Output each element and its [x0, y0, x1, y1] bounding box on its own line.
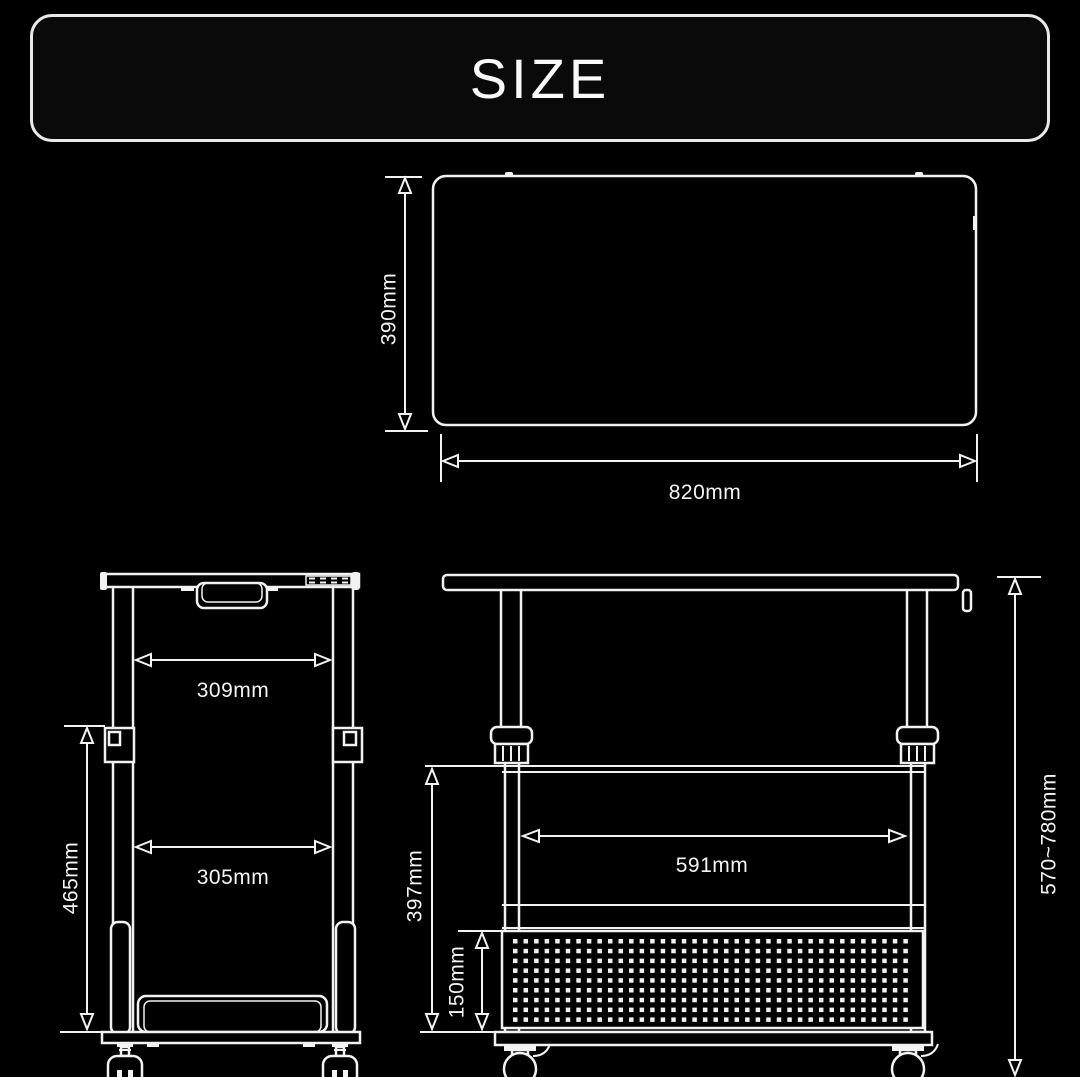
panel-hole [713, 988, 718, 993]
panel-hole [692, 959, 697, 964]
panel-hole [566, 949, 571, 954]
dim-label-309mm: 309mm [197, 679, 270, 702]
panel-hole [629, 978, 634, 983]
panel-hole [808, 968, 813, 973]
panel-hole [903, 988, 908, 993]
panel-hole [534, 968, 539, 973]
panel-hole [745, 949, 750, 954]
panel-hole [650, 998, 655, 1003]
panel-hole [524, 968, 529, 973]
panel-hole [766, 949, 771, 954]
panel-hole [713, 998, 718, 1003]
panel-hole [682, 998, 687, 1003]
panel-hole [872, 988, 877, 993]
panel-hole [661, 978, 666, 983]
panel-hole [629, 959, 634, 964]
panel-hole [840, 968, 845, 973]
panel-hole [682, 1008, 687, 1013]
panel-hole [671, 1017, 676, 1022]
panel-hole [819, 988, 824, 993]
panel-hole [861, 959, 866, 964]
panel-hole [513, 968, 518, 973]
panel-hole [640, 939, 645, 944]
panel-hole [545, 939, 550, 944]
panel-hole [861, 1008, 866, 1013]
side-left-leg [501, 589, 521, 729]
panel-hole [640, 959, 645, 964]
panel-hole [619, 968, 624, 973]
panel-hole [882, 959, 887, 964]
dim-label-570-780mm: 570~780mm [1037, 773, 1060, 895]
panel-hole [851, 1017, 856, 1022]
panel-hole [787, 978, 792, 983]
panel-hole [819, 939, 824, 944]
panel-hole [661, 1008, 666, 1013]
screw-mark-left [505, 172, 513, 177]
panel-hole [671, 998, 676, 1003]
panel-hole [840, 1017, 845, 1022]
panel-hole [798, 998, 803, 1003]
panel-hole [808, 1008, 813, 1013]
panel-hole [587, 1008, 592, 1013]
panel-hole [861, 998, 866, 1003]
panel-hole [555, 998, 560, 1003]
panel-hole [608, 1017, 613, 1022]
panel-hole [650, 988, 655, 993]
panel-hole [671, 939, 676, 944]
panel-hole [661, 988, 666, 993]
panel-hole [640, 968, 645, 973]
panel-hole [840, 949, 845, 954]
panel-hole [703, 959, 708, 964]
panel-hole [745, 998, 750, 1003]
panel-hole [861, 1017, 866, 1022]
panel-hole [640, 998, 645, 1003]
panel-hole [640, 1008, 645, 1013]
panel-hole [513, 939, 518, 944]
panel-hole [840, 998, 845, 1003]
panel-hole [840, 1008, 845, 1013]
panel-hole [819, 1017, 824, 1022]
panel-hole [576, 968, 581, 973]
panel-hole [703, 1008, 708, 1013]
panel-hole [692, 949, 697, 954]
dim-label-397mm: 397mm [403, 850, 426, 923]
panel-hole [619, 978, 624, 983]
dim-390mm: 390mm [377, 177, 428, 431]
panel-hole [555, 988, 560, 993]
panel-hole [735, 1008, 740, 1013]
panel-hole [524, 988, 529, 993]
panel-hole [524, 1008, 529, 1013]
panel-hole [777, 959, 782, 964]
side-view-diagram [420, 575, 971, 1077]
panel-hole [629, 968, 634, 973]
panel-hole [597, 959, 602, 964]
panel-hole [608, 978, 613, 983]
panel-hole [682, 939, 687, 944]
panel-hole [650, 959, 655, 964]
panel-hole [724, 1017, 729, 1022]
panel-hole [661, 949, 666, 954]
panel-hole [903, 939, 908, 944]
panel-hole [545, 998, 550, 1003]
panel-hole [545, 978, 550, 983]
panel-hole [861, 939, 866, 944]
panel-hole [840, 988, 845, 993]
side-right-clamp [897, 727, 938, 763]
panel-hole [608, 939, 613, 944]
panel-hole [819, 978, 824, 983]
panel-hole [893, 978, 898, 983]
panel-hole [671, 959, 676, 964]
panel-hole [724, 949, 729, 954]
panel-hole [819, 959, 824, 964]
dim-820mm: 820mm [441, 434, 977, 504]
panel-hole [756, 968, 761, 973]
panel-hole [629, 988, 634, 993]
panel-hole [576, 988, 581, 993]
panel-hole [545, 959, 550, 964]
panel-hole [671, 978, 676, 983]
panel-hole [861, 988, 866, 993]
panel-hole [692, 1017, 697, 1022]
panel-hole [534, 1008, 539, 1013]
panel-hole [777, 998, 782, 1003]
panel-hole [798, 1017, 803, 1022]
panel-hole [545, 968, 550, 973]
panel-hole [640, 978, 645, 983]
panel-hole [661, 998, 666, 1003]
panel-hole [745, 988, 750, 993]
front-left-caster [108, 1043, 142, 1077]
panel-hole [882, 998, 887, 1003]
panel-hole [830, 949, 835, 954]
panel-hole [587, 939, 592, 944]
dim-465mm: 465mm [59, 726, 105, 1029]
panel-hole [777, 988, 782, 993]
panel-hole [798, 959, 803, 964]
panel-hole [629, 998, 634, 1003]
dim-305mm: 305mm [136, 841, 330, 889]
panel-hole [587, 968, 592, 973]
panel-hole [777, 968, 782, 973]
panel-hole [766, 939, 771, 944]
panel-hole [597, 1008, 602, 1013]
panel-hole [524, 959, 529, 964]
panel-hole [619, 1008, 624, 1013]
panel-hole [576, 978, 581, 983]
panel-hole [545, 1017, 550, 1022]
panel-hole [608, 949, 613, 954]
panel-hole [650, 939, 655, 944]
panel-hole [703, 1017, 708, 1022]
panel-hole [756, 1017, 761, 1022]
panel-hole [524, 939, 529, 944]
panel-hole [808, 998, 813, 1003]
panel-hole [745, 978, 750, 983]
panel-hole [671, 1008, 676, 1013]
panel-hole [798, 968, 803, 973]
panel-hole [513, 1017, 518, 1022]
panel-hole [872, 968, 877, 973]
panel-hole [798, 988, 803, 993]
panel-hole [640, 949, 645, 954]
panel-hole [619, 998, 624, 1003]
panel-hole [576, 949, 581, 954]
dim-label-390mm: 390mm [377, 273, 400, 346]
panel-hole [513, 959, 518, 964]
panel-hole [555, 959, 560, 964]
panel-hole [830, 978, 835, 983]
panel-hole [735, 949, 740, 954]
panel-hole [703, 978, 708, 983]
panel-hole [808, 1017, 813, 1022]
panel-hole [555, 939, 560, 944]
panel-hole [513, 988, 518, 993]
panel-hole [830, 998, 835, 1003]
panel-hole [713, 1008, 718, 1013]
panel-hole [597, 1017, 602, 1022]
panel-hole [893, 959, 898, 964]
panel-hole [597, 998, 602, 1003]
panel-hole [903, 998, 908, 1003]
panel-hole [682, 968, 687, 973]
panel-hole [787, 968, 792, 973]
panel-hole [903, 959, 908, 964]
panel-hole [882, 978, 887, 983]
panel-hole [777, 949, 782, 954]
panel-hole [724, 988, 729, 993]
panel-hole [882, 949, 887, 954]
panel-hole [597, 949, 602, 954]
panel-hole [872, 978, 877, 983]
screw-mark-right [915, 172, 923, 177]
panel-hole [619, 949, 624, 954]
side-hook [963, 590, 971, 611]
panel-hole [840, 978, 845, 983]
panel-hole [566, 998, 571, 1003]
panel-hole [724, 968, 729, 973]
panel-hole [851, 978, 856, 983]
panel-hole [629, 1008, 634, 1013]
panel-hole [735, 968, 740, 973]
panel-hole [682, 978, 687, 983]
panel-hole [703, 988, 708, 993]
panel-hole [703, 998, 708, 1003]
panel-hole [724, 1008, 729, 1013]
panel-hole [608, 998, 613, 1003]
panel-hole [787, 1017, 792, 1022]
panel-hole [703, 949, 708, 954]
panel-hole [576, 1008, 581, 1013]
panel-hole [882, 939, 887, 944]
dim-label-305mm: 305mm [197, 866, 270, 889]
panel-hole [830, 988, 835, 993]
front-left-clamp [105, 728, 134, 762]
dim-309mm: 309mm [136, 654, 330, 702]
panel-hole [640, 1017, 645, 1022]
panel-hole [872, 1017, 877, 1022]
panel-hole [713, 939, 718, 944]
panel-hole [534, 959, 539, 964]
panel-hole [787, 939, 792, 944]
panel-hole [745, 968, 750, 973]
panel-hole [893, 968, 898, 973]
panel-hole [808, 959, 813, 964]
panel-hole [524, 949, 529, 954]
panel-hole [861, 968, 866, 973]
panel-hole [766, 988, 771, 993]
panel-hole [534, 988, 539, 993]
panel-hole [798, 939, 803, 944]
side-tabletop [443, 575, 958, 590]
panel-hole [608, 968, 613, 973]
panel-hole [819, 949, 824, 954]
panel-hole [650, 1008, 655, 1013]
panel-hole [524, 1017, 529, 1022]
front-right-caster [323, 1043, 357, 1077]
panel-hole [629, 1017, 634, 1022]
panel-hole [587, 998, 592, 1003]
panel-hole [830, 968, 835, 973]
panel-hole [745, 959, 750, 964]
panel-hole [872, 959, 877, 964]
panel-hole [766, 959, 771, 964]
panel-hole [682, 959, 687, 964]
panel-hole [682, 949, 687, 954]
front-tray [197, 583, 267, 608]
panel-hole [830, 1008, 835, 1013]
panel-hole [724, 939, 729, 944]
panel-hole [671, 949, 676, 954]
panel-hole [787, 988, 792, 993]
panel-hole [597, 988, 602, 993]
panel-hole [692, 968, 697, 973]
panel-hole [576, 959, 581, 964]
top-view-diagram [433, 172, 976, 425]
panel-hole [830, 1017, 835, 1022]
panel-hole [555, 968, 560, 973]
panel-hole [524, 978, 529, 983]
panel-hole [830, 959, 835, 964]
panel-hole [872, 939, 877, 944]
panel-hole [766, 1008, 771, 1013]
panel-hole [872, 998, 877, 1003]
panel-hole [545, 1008, 550, 1013]
panel-hole [555, 1017, 560, 1022]
panel-hole [756, 1008, 761, 1013]
panel-hole [851, 1008, 856, 1013]
panel-hole [893, 1008, 898, 1013]
panel-hole [713, 959, 718, 964]
panel-hole [903, 978, 908, 983]
panel-hole [851, 959, 856, 964]
panel-hole [787, 1008, 792, 1013]
panel-hole [777, 1017, 782, 1022]
panel-hole [756, 988, 761, 993]
panel-hole [724, 959, 729, 964]
panel-hole [650, 949, 655, 954]
panel-hole [735, 959, 740, 964]
panel-hole [819, 1008, 824, 1013]
panel-hole [587, 949, 592, 954]
panel-hole [882, 988, 887, 993]
side-left-clamp [491, 727, 532, 763]
panel-hole [597, 939, 602, 944]
panel-hole [745, 1017, 750, 1022]
panel-hole [692, 978, 697, 983]
dimension-drawing: 390mm 820mm [0, 0, 1080, 1077]
panel-hole [819, 968, 824, 973]
panel-hole [524, 998, 529, 1003]
panel-hole [735, 939, 740, 944]
panel-hole [513, 949, 518, 954]
panel-hole [808, 988, 813, 993]
panel-hole [671, 988, 676, 993]
dim-150mm: 150mm [445, 931, 502, 1029]
panel-hole [851, 968, 856, 973]
perforated-panel [502, 931, 923, 1028]
panel-hole [566, 1017, 571, 1022]
panel-hole [882, 968, 887, 973]
panel-hole [608, 1008, 613, 1013]
panel-hole [787, 998, 792, 1003]
panel-hole [513, 1008, 518, 1013]
panel-hole [566, 968, 571, 973]
side-left-caster [504, 1044, 550, 1077]
panel-hole [777, 939, 782, 944]
panel-hole [682, 1017, 687, 1022]
panel-hole [566, 939, 571, 944]
panel-hole [745, 1008, 750, 1013]
panel-hole [650, 968, 655, 973]
panel-hole [566, 988, 571, 993]
panel-hole [619, 1017, 624, 1022]
panel-hole [608, 988, 613, 993]
side-base-bar [495, 1032, 932, 1045]
panel-hole [903, 949, 908, 954]
panel-hole [766, 1017, 771, 1022]
dim-label-150mm: 150mm [445, 946, 468, 1019]
panel-hole [882, 1017, 887, 1022]
panel-hole [534, 1017, 539, 1022]
panel-hole [735, 988, 740, 993]
panel-hole [756, 949, 761, 954]
panel-hole [661, 968, 666, 973]
panel-hole [808, 978, 813, 983]
panel-hole [629, 939, 634, 944]
panel-hole [766, 998, 771, 1003]
side-right-caster [892, 1044, 938, 1077]
panel-hole [576, 939, 581, 944]
panel-hole [872, 949, 877, 954]
panel-hole [534, 998, 539, 1003]
panel-hole [587, 1017, 592, 1022]
panel-hole [534, 939, 539, 944]
dim-label-465mm: 465mm [59, 842, 82, 915]
dim-591mm: 591mm [523, 830, 905, 877]
front-view-diagram [60, 572, 362, 1077]
panel-hole [555, 1008, 560, 1013]
panel-hole [661, 959, 666, 964]
panel-hole [756, 998, 761, 1003]
panel-hole [713, 968, 718, 973]
panel-hole [893, 1017, 898, 1022]
front-right-clamp [333, 728, 362, 762]
panel-hole [735, 1017, 740, 1022]
panel-hole [713, 978, 718, 983]
